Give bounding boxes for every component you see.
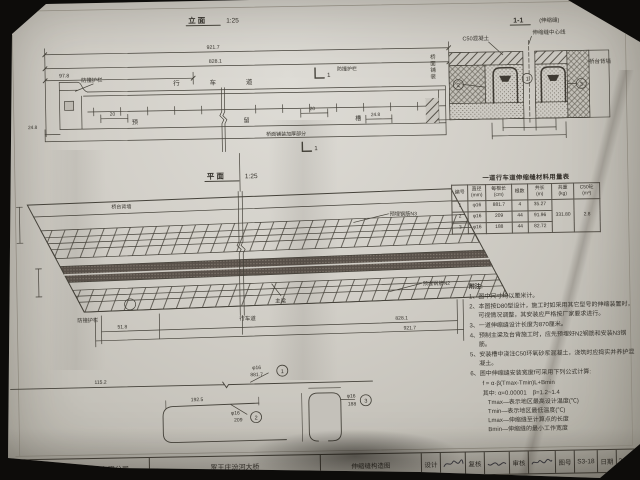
photo-of-drawing: 立 面 1:25 921.7 828.1 97.8 防撞护栏	[0, 0, 640, 480]
cell: φ16	[468, 212, 486, 223]
cell: 881.7	[486, 200, 512, 211]
bar-n2-len: 209	[234, 417, 243, 423]
col-header: 编号	[452, 185, 468, 201]
plan-girder-label: 主梁	[275, 297, 287, 305]
drawing-no-label: 图号	[556, 451, 575, 473]
signature-design	[442, 458, 464, 470]
rebar-details: 115.2 φ16 881.7 1 192.5 φ16 209 2 φ16 18…	[10, 363, 373, 446]
backwall-label: 桥台背墙	[589, 57, 612, 65]
c50-label: C50混凝土	[462, 34, 489, 42]
cell: 82.72	[528, 221, 552, 232]
company-name: 山西诚达公路勘察设计有限公司	[10, 458, 150, 480]
material-table: 一道行车道伸缩缝材料用量表 编号 直径 (mm) 每根长 (cm) 根数 共长 …	[451, 171, 602, 235]
thicken-label: 桥面铺装加厚部分	[266, 130, 306, 138]
cell: 35.27	[528, 199, 552, 210]
bar-n3-no: 3	[364, 399, 367, 405]
section-title: 1-1	[513, 17, 523, 24]
bar-n1-len: 881.7	[250, 372, 263, 378]
elevation-scale: 1:25	[226, 17, 239, 24]
cell: 188	[486, 222, 512, 233]
cell: 1	[452, 201, 468, 212]
material-table-title: 一道行车道伸缩缝材料用量表	[451, 171, 601, 183]
cell-concrete: 2.8	[574, 199, 601, 232]
barrier-label-right: 防撞护栏	[337, 65, 357, 72]
elevation-title: 立 面	[188, 15, 206, 25]
callout-3: 3	[580, 82, 583, 88]
barrier-label-left: 防撞护栏	[81, 76, 103, 84]
drawing-no-value: S3-18	[575, 450, 598, 472]
dim-total: 921.7	[207, 45, 220, 51]
plan-dim-inner: 828.1	[395, 315, 408, 321]
section-mark-top: 1	[327, 73, 331, 79]
paper-sheet: 立 面 1:25 921.7 828.1 97.8 防撞护栏	[0, 0, 640, 480]
date-label: 日期	[598, 450, 617, 472]
cell: 91.96	[528, 210, 552, 221]
callout-2: 2	[457, 83, 460, 89]
material-table-grid: 编号 直径 (mm) 每根长 (cm) 根数 共长 (m) 共重 (kg) C5…	[451, 182, 601, 235]
plan-dim-total: 921.7	[404, 325, 417, 331]
cell: 3	[452, 223, 468, 234]
plan-backwall-label: 桥台背墙	[111, 203, 131, 210]
centerline-label: 伸缩缝中心线	[532, 28, 566, 37]
section-detail: 1-1 (伸缩缝) C50混凝土 伸缩缝中心线	[436, 15, 613, 140]
plan-title: 平 面	[207, 172, 225, 181]
bar-n1-dia: φ16	[252, 365, 261, 371]
check-label: 复核	[466, 452, 485, 474]
dim-inner: 828.1	[209, 59, 222, 65]
bar-n1-offset: 115.2	[94, 380, 106, 386]
bar-n2-dia: φ16	[231, 410, 240, 416]
col-header: 共重 (kg)	[552, 183, 574, 199]
review-label: 审核	[510, 451, 529, 473]
cell: 4	[512, 200, 528, 211]
dim-left: 97.8	[59, 73, 69, 79]
drawing-content: 立 面 1:25 921.7 828.1 97.8 防撞护栏	[0, 0, 640, 480]
cell: 2	[452, 212, 468, 223]
bar-n2-top: 192.5	[191, 397, 204, 403]
dim-20-left: 20	[110, 112, 116, 118]
signature-review	[530, 456, 554, 468]
signature-check	[486, 457, 508, 469]
col-header: 共长 (m)	[528, 183, 552, 199]
design-signature	[441, 452, 466, 474]
col-header: 直径 (mm)	[468, 185, 486, 201]
callout-1: 1	[526, 77, 529, 83]
col-header: 每根长 (cm)	[486, 184, 512, 200]
review-signature	[529, 451, 556, 473]
plan-lane-label: 行车道	[239, 314, 256, 322]
cell: 44	[512, 211, 528, 222]
section-subtitle: (伸缩缝)	[539, 16, 559, 24]
cell-total-weight: 331.80	[552, 199, 575, 232]
col-header: 根数	[512, 184, 528, 200]
plan-n3-label: 预埋钢筋N3	[389, 209, 417, 217]
dim-end-left: 24.8	[28, 125, 38, 131]
elevation-view: 立 面 1:25 921.7 828.1 97.8 防撞护栏	[26, 11, 452, 157]
dim-20-right: 20	[310, 106, 316, 112]
cell: 44	[512, 222, 528, 233]
note-item: 4、预制主梁及台背施工时，应先预埋好N2钢筋和安装N3钢筋。	[470, 329, 637, 350]
check-signature	[485, 452, 510, 474]
bar-n2-no: 2	[255, 416, 258, 422]
bar-n3-dia: φ16	[347, 393, 356, 399]
bar-n1-no: 1	[281, 369, 284, 375]
sheet-name: 伸缩缝构造图	[321, 453, 422, 477]
notes-block: 附注: 1、图中尺寸均以厘米计。 2、本图按D80型设计，施工时如采用其它型号的…	[469, 280, 639, 435]
plan-dim-left: 51.8	[117, 324, 127, 330]
cell: 209	[486, 211, 512, 222]
date-value: 2008.12	[617, 449, 640, 471]
bar-n3-len: 188	[348, 401, 357, 407]
pavement-vertical-label: 桥面铺装	[428, 54, 436, 80]
project-name: 罗王庄汾河大桥	[150, 455, 321, 480]
section-mark-bottom: 1	[314, 146, 318, 152]
cell: φ16	[468, 201, 486, 212]
plan-view: 平 面 1:25 桥台背墙 预埋钢筋N3	[16, 149, 509, 349]
design-label: 设计	[422, 453, 441, 475]
col-header: C50砼 (m³)	[574, 183, 600, 199]
plan-scale: 1:25	[245, 173, 258, 180]
note-item: 2、本图按D80型设计，施工时如采用其它型号的伸缩装置时，可视情况调整，其安装应…	[469, 300, 636, 321]
cell: φ16	[468, 223, 486, 234]
note-item: 5、安装槽中浇注C50环氧砂浆混凝土，浇筑时应捣实并养护混凝土。	[470, 348, 637, 369]
